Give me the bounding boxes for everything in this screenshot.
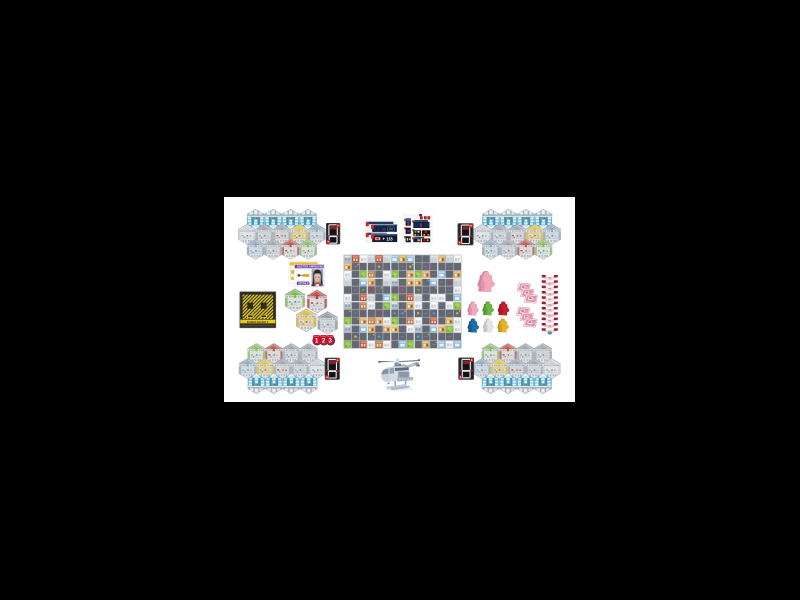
svg-text:DOCTOR APPROVED: DOCTOR APPROVED: [297, 265, 323, 269]
svg-text:EMERGENCY: EMERGENCY: [247, 320, 269, 324]
svg-text:3: 3: [328, 338, 332, 345]
svg-text:2: 2: [322, 338, 326, 345]
svg-text:1: 1: [315, 338, 319, 345]
svg-text:+ 1/3: + 1/3: [382, 237, 393, 242]
svg-text:STERILE: STERILE: [298, 282, 309, 285]
